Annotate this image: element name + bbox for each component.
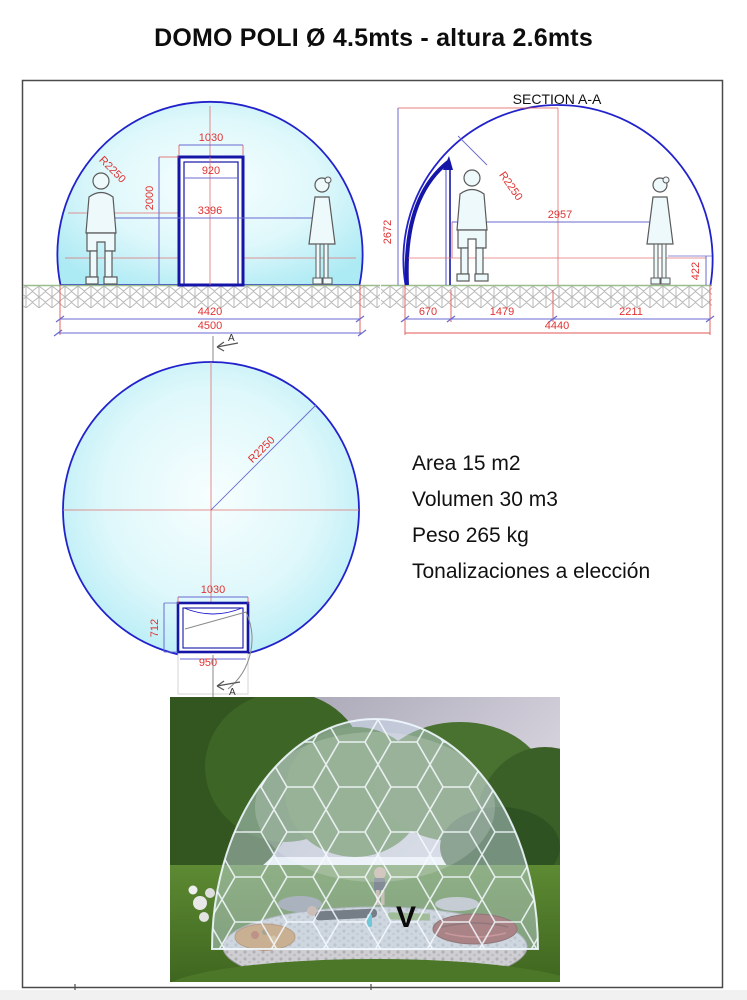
dim-section-1479: 1479 — [490, 306, 514, 318]
dim-front-920: 920 — [202, 165, 220, 177]
plan-door-frame — [178, 603, 248, 652]
section-marker-top: A — [228, 333, 235, 344]
dim-plan-1030: 1030 — [201, 584, 225, 596]
dim-section-4440: 4440 — [545, 320, 569, 332]
spec-weight: Peso 265 kg — [412, 518, 650, 554]
photo-scene — [170, 697, 560, 982]
dim-front-3396: 3396 — [198, 205, 222, 217]
page-margin — [0, 990, 747, 1000]
dim-plan-950: 950 — [199, 657, 217, 669]
drawing-sheet: DOMO POLI Ø 4.5mts - altura 2.6mts — [0, 0, 747, 1000]
dim-front-2000: 2000 — [144, 186, 156, 210]
dim-section-2957: 2957 — [548, 209, 572, 221]
spec-volume: Volumen 30 m3 — [412, 482, 650, 518]
dim-front-4500: 4500 — [198, 320, 222, 332]
specifications: Area 15 m2 Volumen 30 m3 Peso 265 kg Ton… — [412, 446, 650, 590]
photo-caption: V — [396, 901, 416, 935]
spec-area: Area 15 m2 — [412, 446, 650, 482]
front-ground-hatch — [23, 286, 380, 308]
dim-front-4420: 4420 — [198, 306, 222, 318]
dim-section-670: 670 — [419, 306, 437, 318]
dim-front-1030: 1030 — [199, 132, 223, 144]
dim-section-2672: 2672 — [382, 220, 394, 244]
section-ground-hatch — [381, 286, 712, 308]
spec-finish: Tonalizaciones a elección — [412, 554, 650, 590]
product-photo: V — [170, 697, 560, 982]
dim-section-2211: 2211 — [619, 306, 643, 318]
dim-plan-712: 712 — [149, 619, 161, 637]
dim-section-422: 422 — [690, 262, 702, 280]
